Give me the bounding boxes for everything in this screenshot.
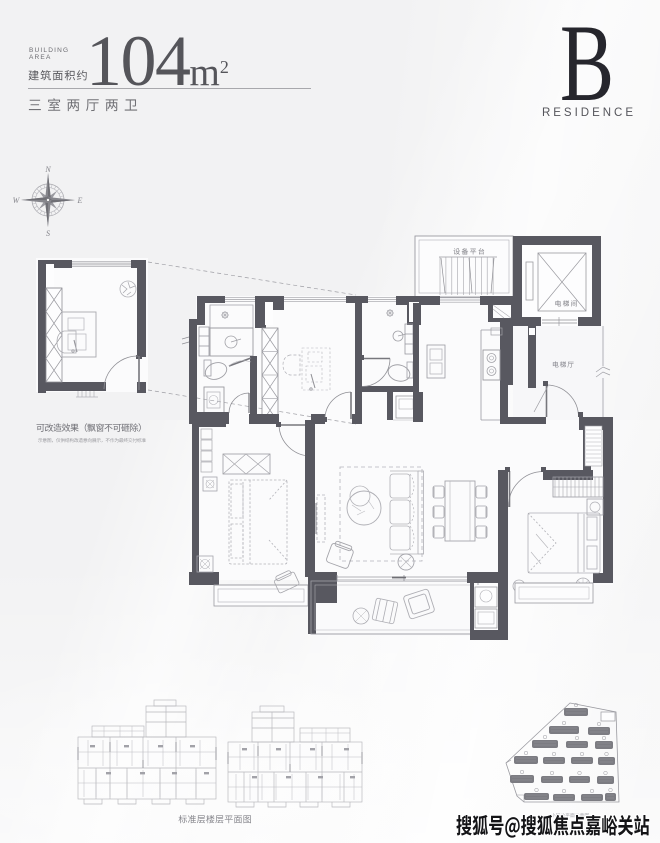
svg-text:E: E: [77, 196, 83, 205]
svg-text:N: N: [44, 165, 51, 174]
svg-text:W: W: [13, 196, 21, 205]
svg-text:S: S: [46, 229, 50, 238]
